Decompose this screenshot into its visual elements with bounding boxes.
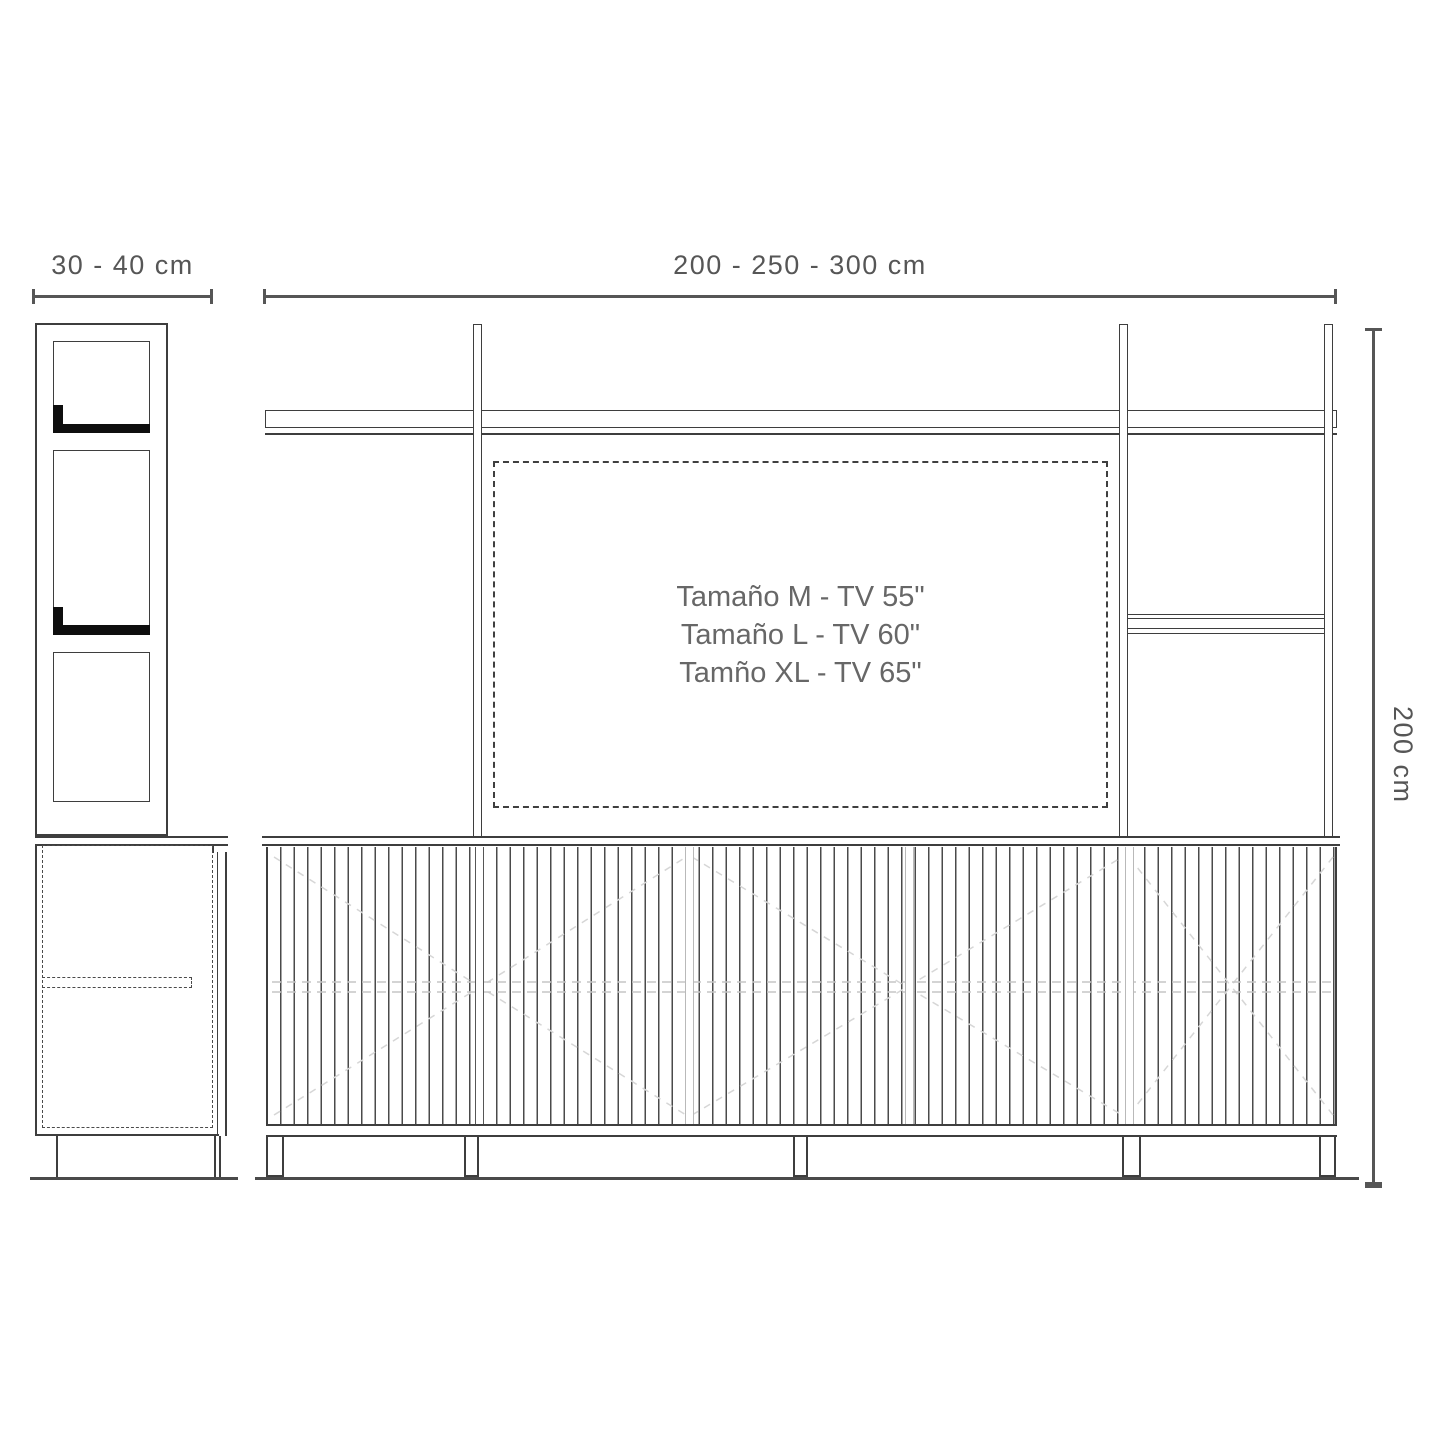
side-base-front-door [217,852,227,1136]
tv-size-line-m: Tamaño M - TV 55" [676,578,924,616]
front-leg-1 [266,1137,284,1177]
side-floor-line [30,1177,238,1180]
side-base-left-edge [35,846,37,1136]
depth-dimension-line [32,295,213,298]
width-dimension-tick-right [1334,289,1337,304]
door-swing-and-hidden-lines [268,847,1339,1124]
furniture-technical-drawing: 30 - 40 cm 200 - 250 - 300 cm 200 cm Tam… [0,0,1445,1445]
side-base-front-leg [214,1136,221,1177]
front-left-post [473,324,482,836]
side-shelf-section-top-vertical [53,405,63,433]
depth-dimension-label: 30 - 40 cm [32,250,213,281]
side-shelf-opening-bottom [53,652,150,802]
front-leg-4 [1122,1137,1141,1177]
height-dimension-tick-bottom [1365,1182,1382,1188]
front-right-post [1324,324,1333,836]
tv-placement-outline: Tamaño M - TV 55" Tamaño L - TV 60" Tamñ… [493,461,1108,808]
depth-dimension-tick-left [32,289,35,304]
tv-size-line-l: Tamaño L - TV 60" [681,616,920,654]
side-shelf-section-middle-vertical [53,607,63,635]
width-dimension-tick-left [263,289,266,304]
side-base-bottom-edge [35,1134,219,1136]
height-dimension-label: 200 cm [1387,706,1418,804]
door-gap-1 [475,847,484,1124]
front-base-bottom-rail [266,1124,1337,1137]
side-shelf-opening-middle [53,450,150,635]
side-shelf-opening-top [53,341,150,433]
side-base-back-leg [56,1136,58,1177]
front-counter-top [262,836,1340,846]
front-floor-line [255,1177,1359,1180]
height-dimension-tick-top [1365,328,1382,331]
tv-size-line-xl: Tamño XL - TV 65" [679,654,921,692]
side-shelf-section-middle-horizontal [53,625,150,635]
front-middle-post [1119,324,1128,836]
door-gap-3 [905,847,914,1124]
side-shelf-section-top-horizontal [53,424,150,433]
front-leg-5 [1319,1137,1336,1177]
front-long-shelf [265,410,1337,428]
front-leg-2 [464,1137,479,1177]
depth-dimension-tick-right [210,289,213,304]
width-dimension-line [263,295,1337,298]
height-dimension-line [1372,330,1375,1186]
door-gap-4 [1125,847,1134,1124]
front-fluted-doors [266,847,1337,1124]
side-base-hidden-divider [42,977,192,988]
width-dimension-label: 200 - 250 - 300 cm [263,250,1337,281]
front-right-column-shelf-upper [1128,614,1324,619]
door-gap-2 [685,847,694,1124]
front-leg-3 [793,1137,808,1177]
front-right-column-shelf-lower [1128,628,1324,634]
front-long-shelf-lower-edge [265,433,1337,435]
